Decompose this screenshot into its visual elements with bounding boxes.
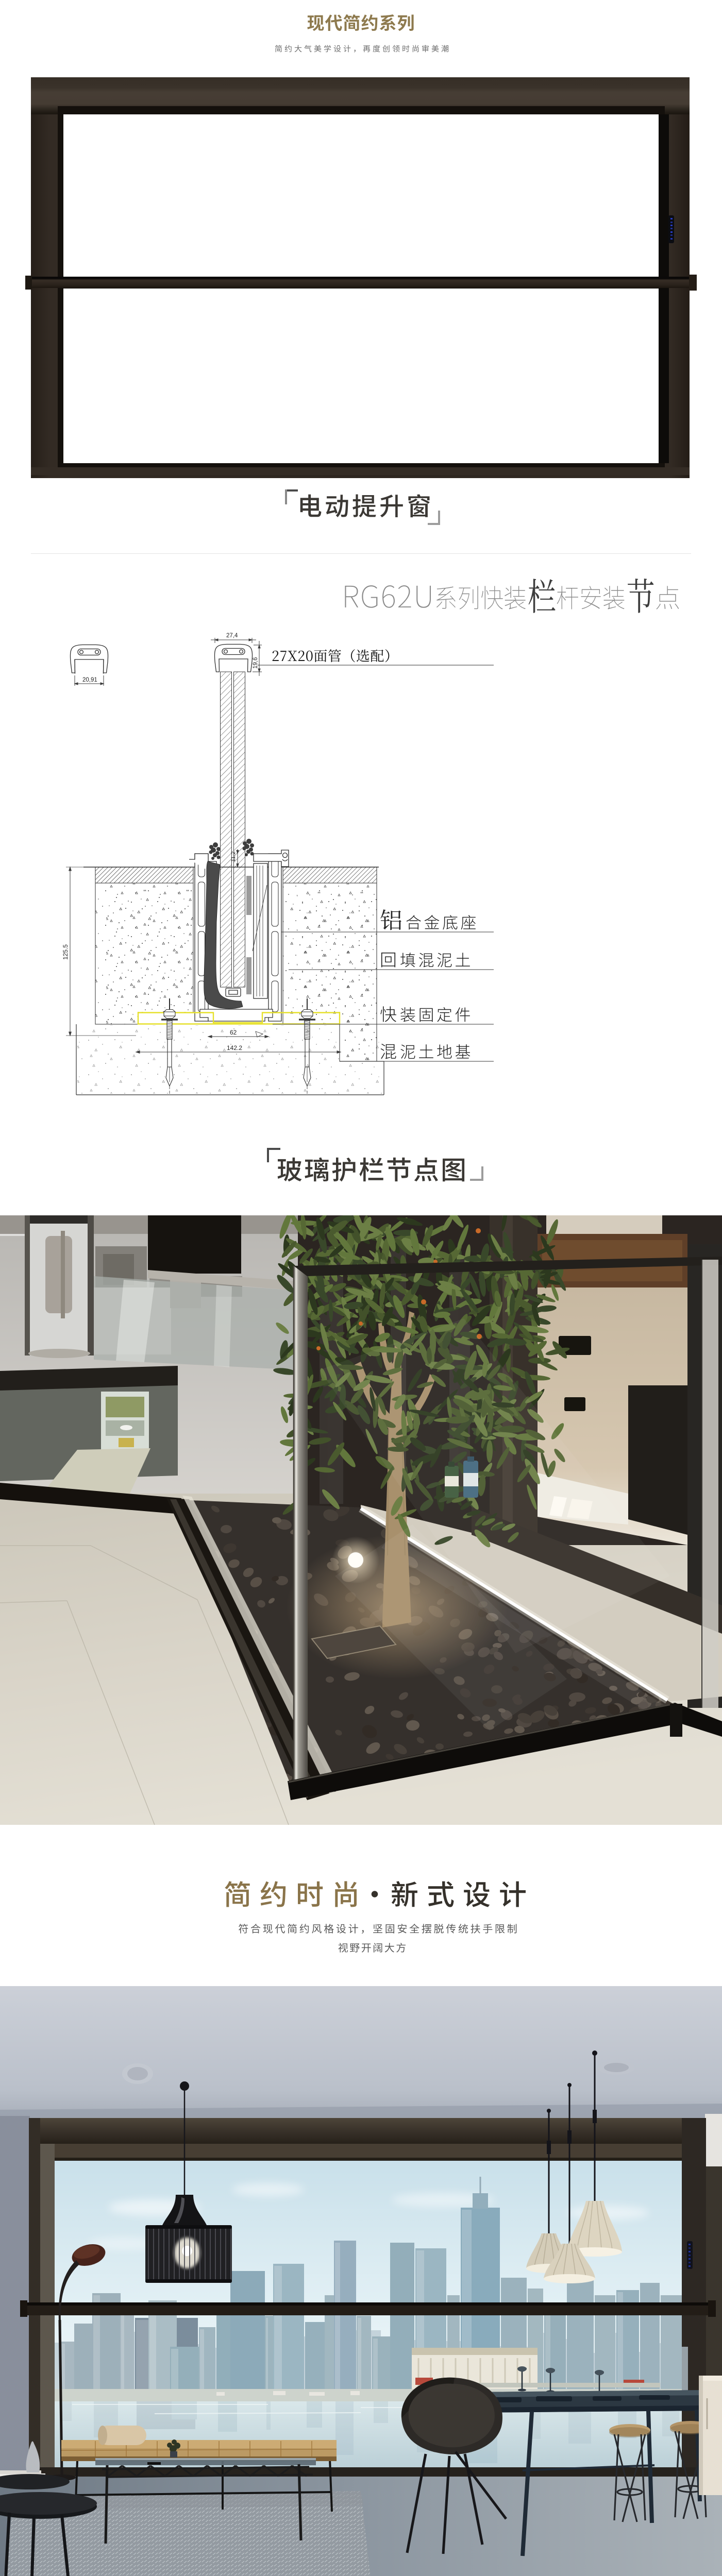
svg-text:19,6: 19,6 xyxy=(253,657,259,669)
svg-text:125.5: 125.5 xyxy=(62,944,69,960)
svg-text:62: 62 xyxy=(230,1029,237,1036)
svg-text:20,91: 20,91 xyxy=(82,677,97,683)
svg-text:27,4: 27,4 xyxy=(226,633,238,639)
svg-text:142.2: 142.2 xyxy=(227,1044,242,1052)
svg-text:11.2: 11.2 xyxy=(230,851,237,862)
